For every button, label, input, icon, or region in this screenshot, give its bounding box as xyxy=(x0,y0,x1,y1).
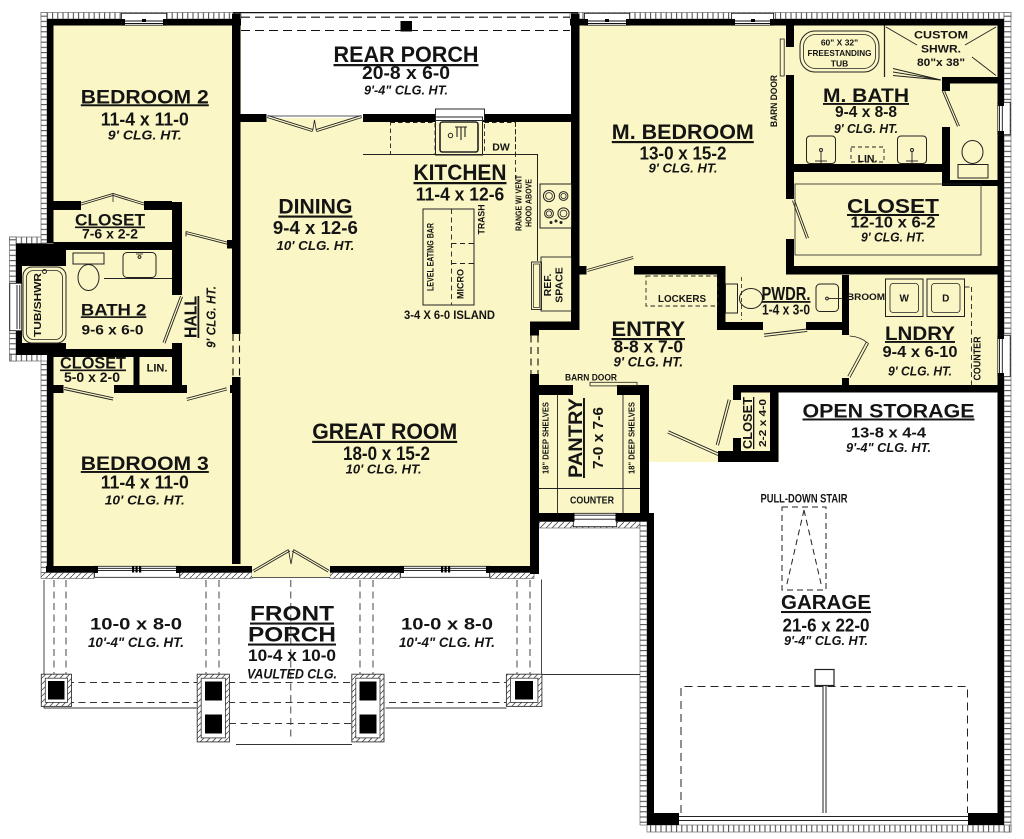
svg-text:LNDRY: LNDRY xyxy=(885,324,955,345)
svg-text:RANGE W/ VENT: RANGE W/ VENT xyxy=(515,175,524,231)
svg-text:80"x 38": 80"x 38" xyxy=(917,57,965,69)
svg-text:9'-4" CLG. HT.: 9'-4" CLG. HT. xyxy=(364,83,448,98)
svg-text:10'-4" CLG. HT.: 10'-4" CLG. HT. xyxy=(399,635,495,650)
svg-text:REF.: REF. xyxy=(542,274,554,297)
svg-text:DINING: DINING xyxy=(278,195,352,219)
svg-text:5-0 x 2-0: 5-0 x 2-0 xyxy=(64,370,120,385)
svg-text:9' CLG. HT.: 9' CLG. HT. xyxy=(614,354,684,370)
svg-text:1-4 x 3-0: 1-4 x 3-0 xyxy=(762,302,810,319)
svg-text:PANTRY: PANTRY xyxy=(565,398,587,478)
svg-text:HOOD ABOVE: HOOD ABOVE xyxy=(525,178,534,227)
svg-text:9'-4" CLG. HT.: 9'-4" CLG. HT. xyxy=(784,633,868,648)
svg-text:10-0 x 8-0: 10-0 x 8-0 xyxy=(401,615,493,634)
svg-text:W: W xyxy=(899,294,909,305)
svg-text:TRASH: TRASH xyxy=(477,205,487,235)
svg-text:LIN.: LIN. xyxy=(147,363,168,375)
svg-text:FREESTANDING: FREESTANDING xyxy=(808,48,872,58)
svg-text:9' CLG. HT.: 9' CLG. HT. xyxy=(205,286,219,348)
svg-text:BATH 2: BATH 2 xyxy=(81,301,147,319)
svg-text:LOCKERS: LOCKERS xyxy=(658,293,706,305)
svg-text:13-8 x 4-4: 13-8 x 4-4 xyxy=(851,425,927,442)
svg-text:HALL: HALL xyxy=(181,296,201,338)
svg-text:SHWR.: SHWR. xyxy=(921,44,961,56)
svg-text:7-0 x 7-6: 7-0 x 7-6 xyxy=(590,407,607,469)
svg-text:18" DEEP SHELVES: 18" DEEP SHELVES xyxy=(541,402,551,474)
svg-text:BROOM: BROOM xyxy=(847,292,885,303)
svg-text:10' CLG. HT.: 10' CLG. HT. xyxy=(346,462,422,477)
svg-text:BARN DOOR: BARN DOOR xyxy=(565,373,617,384)
svg-text:20-8 x 6-0: 20-8 x 6-0 xyxy=(362,63,450,83)
svg-text:PULL-DOWN STAIR: PULL-DOWN STAIR xyxy=(761,494,849,506)
svg-text:9-4 x 8-8: 9-4 x 8-8 xyxy=(835,104,897,121)
svg-text:18" DEEP SHELVES: 18" DEEP SHELVES xyxy=(627,402,637,474)
svg-text:D: D xyxy=(942,294,949,305)
svg-text:GREAT ROOM: GREAT ROOM xyxy=(312,419,457,444)
svg-text:PORCH: PORCH xyxy=(248,624,336,647)
svg-text:BEDROOM 2: BEDROOM 2 xyxy=(81,86,209,108)
svg-text:60" X 32": 60" X 32" xyxy=(821,38,858,48)
svg-text:9'-4" CLG. HT.: 9'-4" CLG. HT. xyxy=(846,440,931,455)
svg-text:KITCHEN: KITCHEN xyxy=(414,160,507,185)
svg-text:11-4 x 11-0: 11-4 x 11-0 xyxy=(101,109,189,129)
svg-text:M. BEDROOM: M. BEDROOM xyxy=(612,120,754,144)
svg-text:FRONT: FRONT xyxy=(250,603,334,626)
svg-text:9' CLG. HT.: 9' CLG. HT. xyxy=(888,364,952,379)
svg-text:VAULTED CLG.: VAULTED CLG. xyxy=(247,667,337,682)
svg-text:9' CLG. HT.: 9' CLG. HT. xyxy=(834,121,898,136)
svg-text:10-0 x 8-0: 10-0 x 8-0 xyxy=(90,615,182,634)
svg-text:10-4 x 10-0: 10-4 x 10-0 xyxy=(248,646,336,665)
svg-text:10' CLG. HT.: 10' CLG. HT. xyxy=(105,493,185,508)
svg-text:7-6 x 2-2: 7-6 x 2-2 xyxy=(82,227,138,242)
svg-text:9-4 x 6-10: 9-4 x 6-10 xyxy=(883,344,958,361)
svg-text:10' CLG. HT.: 10' CLG. HT. xyxy=(276,238,354,253)
svg-text:11-4 x 11-0: 11-4 x 11-0 xyxy=(101,473,189,493)
svg-text:CUSTOM: CUSTOM xyxy=(914,30,968,42)
svg-text:COUNTER: COUNTER xyxy=(570,495,614,507)
svg-text:DW: DW xyxy=(492,142,510,154)
svg-text:2-2 x 4-0: 2-2 x 4-0 xyxy=(757,399,769,447)
svg-text:9-6 x 6-0: 9-6 x 6-0 xyxy=(82,322,144,338)
svg-text:3-4 X 6-0 ISLAND: 3-4 X 6-0 ISLAND xyxy=(404,310,495,322)
svg-text:BARN DOOR: BARN DOOR xyxy=(769,75,780,127)
svg-text:10'-4" CLG. HT.: 10'-4" CLG. HT. xyxy=(88,635,184,650)
svg-text:TUB: TUB xyxy=(831,59,848,69)
svg-text:LIN.: LIN. xyxy=(858,153,878,165)
svg-text:9' CLG. HT.: 9' CLG. HT. xyxy=(108,128,182,143)
svg-text:GARAGE: GARAGE xyxy=(781,591,871,614)
svg-text:COUNTER: COUNTER xyxy=(973,336,984,381)
svg-text:11-4 x 12-6: 11-4 x 12-6 xyxy=(416,184,505,205)
svg-text:9' CLG. HT.: 9' CLG. HT. xyxy=(861,230,925,245)
svg-text:LEVEL EATING BAR: LEVEL EATING BAR xyxy=(426,223,436,291)
svg-text:CLOSET: CLOSET xyxy=(740,397,755,449)
svg-text:TUB/SHWR: TUB/SHWR xyxy=(32,273,44,337)
svg-text:9-4 x 12-6: 9-4 x 12-6 xyxy=(273,218,358,238)
svg-text:SPACE: SPACE xyxy=(554,267,566,302)
svg-text:OPEN STORAGE: OPEN STORAGE xyxy=(803,401,975,423)
svg-text:9' CLG. HT.: 9' CLG. HT. xyxy=(649,161,718,176)
svg-text:MICRO: MICRO xyxy=(456,269,466,299)
